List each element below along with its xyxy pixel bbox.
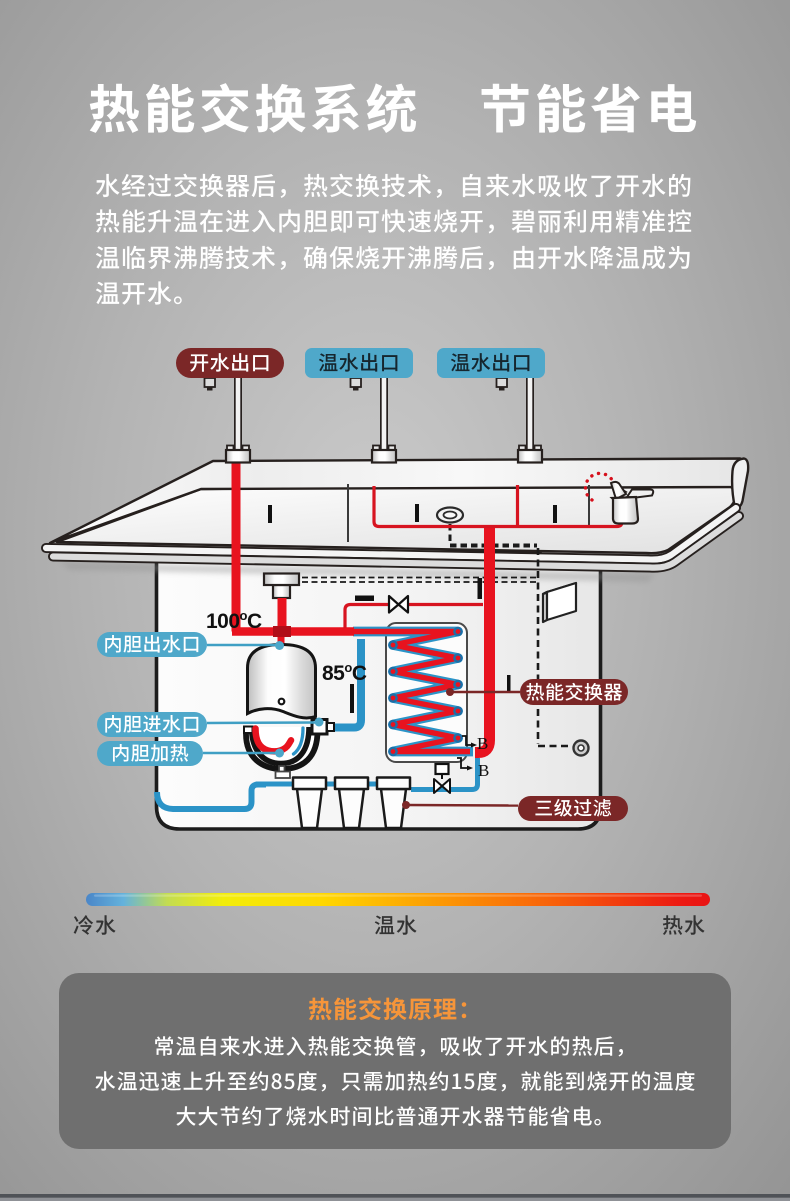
svg-text:100oC: 100oC: [206, 608, 262, 633]
svg-text:B: B: [478, 761, 489, 780]
svg-text:B: B: [477, 734, 488, 753]
